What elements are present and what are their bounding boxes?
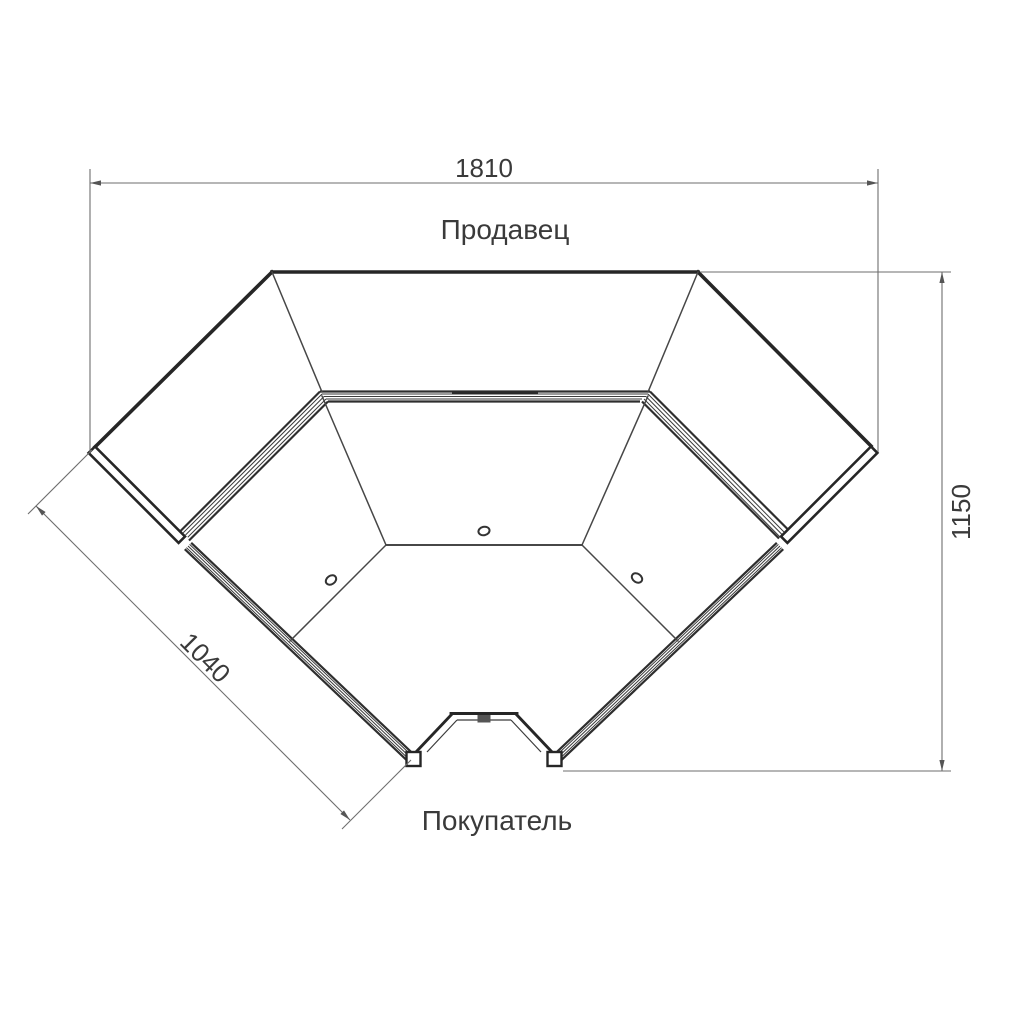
- back-right-edge: [698, 272, 871, 446]
- dim-overall-width-label: 1810: [455, 153, 513, 183]
- vent-hole: [478, 526, 491, 537]
- dim-front-left-label: 1040: [174, 627, 236, 689]
- corner-counter-plan-drawing: 1810 1150 1040 Продавец Покупатель: [0, 0, 1024, 1024]
- dim-overall-depth-label: 1150: [946, 484, 976, 540]
- notch-center-tick: [478, 715, 491, 723]
- right-inner-glass-band: [642, 392, 788, 539]
- vent-hole: [630, 571, 644, 584]
- left-corner-pad: [407, 752, 421, 766]
- left-deck-joint: [290, 545, 386, 641]
- extension-line: [28, 450, 92, 514]
- counter-back-outline: [95, 272, 871, 447]
- front-right-glass-band: [553, 543, 783, 762]
- left-side-wall: [272, 272, 322, 392]
- dimension-overall-width: 1810: [90, 153, 878, 452]
- display-well-back-band: [320, 392, 650, 402]
- right-end-cap: [781, 447, 877, 543]
- vent-holes: [324, 526, 644, 587]
- buyer-label: Покупатель: [422, 805, 572, 836]
- arrowhead: [90, 180, 101, 185]
- right-side-wall: [648, 272, 698, 392]
- left-inner-glass-band: [180, 392, 328, 541]
- front-corner-notch: [407, 714, 562, 767]
- display-well-structure: [272, 272, 698, 641]
- dimension-front-left: 1040: [28, 450, 411, 829]
- right-deck-joint: [582, 545, 678, 641]
- end-caps: [89, 447, 878, 543]
- extension-line: [342, 760, 411, 829]
- well-right-edge: [582, 396, 648, 545]
- seller-label: Продавец: [441, 214, 570, 245]
- arrowhead: [867, 180, 878, 185]
- left-end-cap: [89, 447, 185, 543]
- right-corner-pad: [548, 752, 562, 766]
- back-left-edge: [95, 272, 272, 447]
- arrowhead: [939, 760, 944, 771]
- arrowhead: [939, 272, 944, 283]
- vent-hole: [324, 573, 338, 586]
- well-left-edge: [322, 396, 386, 545]
- drawing-page: 1810 1150 1040 Продавец Покупатель: [0, 0, 1024, 1024]
